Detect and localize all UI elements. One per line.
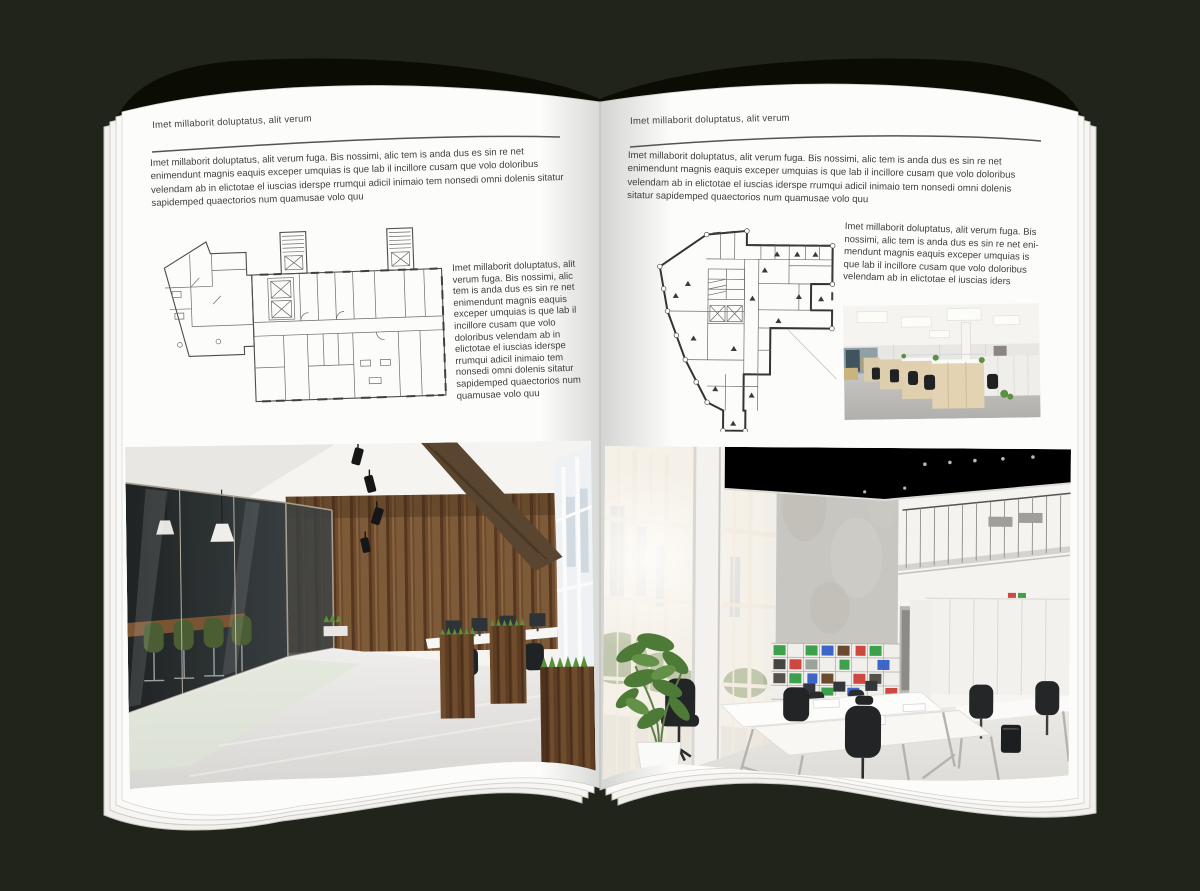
right-page-intro-paragraph: Imet millaborit doluptatus, alit verum f… [627,149,1030,210]
office-photo-atrium [603,446,1071,801]
small-office-ceiling [843,303,1040,346]
atrium-window-wall [603,446,777,799]
office-photo-small [843,303,1041,420]
plan-door-markers [672,250,825,426]
plan-columns [656,228,835,433]
floor-plan-left [153,219,451,412]
office-photo-loft [125,440,596,796]
plan-right-interior [667,232,838,411]
atrium-column-large [691,447,723,789]
plan-left-wing [163,240,254,357]
plan-stair-towers [280,228,414,274]
left-page-side-paragraph: Imet millaborit doluptatus, alit verum f… [452,258,590,402]
right-page-side-paragraph: Imet millaborit doluptatus, alit verum f… [843,221,1044,290]
plan-elevator-core [268,278,295,320]
plan-main-body [252,268,446,401]
floor-plan-right [646,224,840,433]
magazine-spread-mockup: Imet millaborit doluptatus, alit verum I… [0,0,1200,891]
plan-outline [658,230,832,431]
